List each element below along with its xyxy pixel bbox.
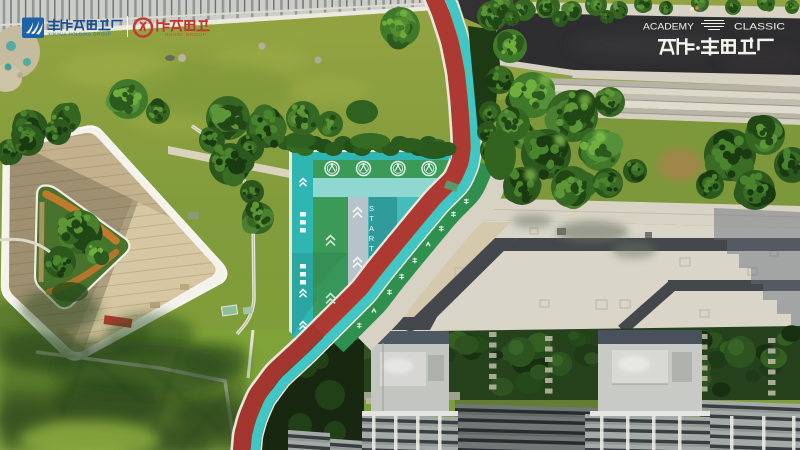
- svg-text:T: T: [369, 214, 374, 223]
- svg-text:S: S: [369, 204, 374, 213]
- svg-text:CLASSIC: CLASSIC: [734, 22, 785, 33]
- svg-text:R: R: [369, 234, 375, 243]
- svg-text:ACADEMY: ACADEMY: [643, 22, 695, 33]
- svg-text:HUADI GROUP: HUADI GROUP: [165, 32, 207, 37]
- svg-text:A: A: [369, 224, 374, 233]
- svg-text:XINHUA HOLDING GROUP: XINHUA HOLDING GROUP: [48, 32, 111, 37]
- svg-text:T: T: [369, 244, 374, 253]
